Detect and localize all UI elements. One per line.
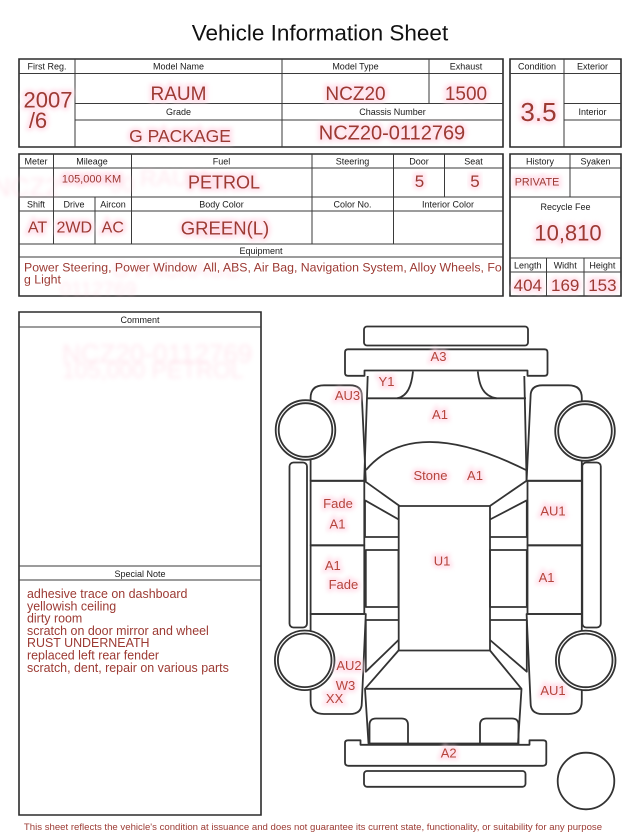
svg-text:10,810: 10,810 xyxy=(534,221,601,246)
svg-text:Vehicle Information Sheet: Vehicle Information Sheet xyxy=(192,20,449,45)
svg-text:Height: Height xyxy=(589,261,616,271)
svg-text:Special Note: Special Note xyxy=(114,569,165,579)
svg-text:Chassis Number: Chassis Number xyxy=(359,107,426,117)
svg-text:History: History xyxy=(526,157,555,167)
svg-text:Drive: Drive xyxy=(63,200,84,210)
svg-text:AU3: AU3 xyxy=(335,388,360,403)
svg-text:Y1: Y1 xyxy=(379,374,395,389)
svg-text:404: 404 xyxy=(514,276,542,295)
svg-text:Steering: Steering xyxy=(336,157,370,167)
svg-text:A3: A3 xyxy=(431,349,447,364)
svg-text:Comment: Comment xyxy=(120,315,160,325)
svg-text:A2: A2 xyxy=(441,746,457,761)
svg-text:PETROL: PETROL xyxy=(188,173,260,193)
svg-text:GREEN(L): GREEN(L) xyxy=(181,218,269,239)
svg-text:105,000 KM: 105,000 KM xyxy=(62,174,121,186)
svg-text:AU1: AU1 xyxy=(540,504,565,519)
svg-text:Condition: Condition xyxy=(518,62,556,72)
svg-text:Equipment: Equipment xyxy=(239,246,283,256)
svg-text:Fade: Fade xyxy=(323,496,353,511)
svg-text:Interior Color: Interior Color xyxy=(422,200,474,210)
svg-text:This sheet reflects the vehicl: This sheet reflects the vehicle's condit… xyxy=(24,822,602,833)
svg-text:Fade: Fade xyxy=(329,577,359,592)
svg-text:169: 169 xyxy=(551,276,579,295)
svg-text:A1: A1 xyxy=(330,517,346,532)
svg-text:g Light: g Light xyxy=(24,272,62,286)
svg-text:NCZ20: NCZ20 xyxy=(325,84,385,105)
svg-text:5: 5 xyxy=(415,172,424,191)
svg-text:Door: Door xyxy=(409,157,429,167)
svg-text:Syaken: Syaken xyxy=(580,157,610,167)
svg-text:0112769: 0112769 xyxy=(60,279,136,301)
svg-text:Recycle Fee: Recycle Fee xyxy=(540,202,590,212)
svg-text:5: 5 xyxy=(470,172,479,191)
svg-text:Exhaust: Exhaust xyxy=(450,62,483,72)
svg-text:U1: U1 xyxy=(434,554,451,569)
svg-text:1500: 1500 xyxy=(445,84,487,105)
svg-text:Model Type: Model Type xyxy=(332,62,378,72)
svg-text:PRIVATE: PRIVATE xyxy=(515,177,560,189)
svg-text:/6: /6 xyxy=(29,108,47,133)
svg-text:First Reg.: First Reg. xyxy=(27,62,66,72)
svg-text:Stone: Stone xyxy=(414,468,448,483)
svg-text:AT: AT xyxy=(28,220,47,237)
svg-text:scratch, dent, repair on vario: scratch, dent, repair on various parts xyxy=(27,661,229,675)
svg-text:AU2: AU2 xyxy=(336,658,361,673)
svg-text:NCZ2: NCZ2 xyxy=(0,172,60,202)
svg-text:A1: A1 xyxy=(539,570,555,585)
svg-text:Widht: Widht xyxy=(554,261,578,271)
svg-text:A1: A1 xyxy=(432,407,448,422)
svg-text:Exterior: Exterior xyxy=(577,62,608,72)
svg-text:Length: Length xyxy=(514,261,542,271)
svg-text:XX: XX xyxy=(326,691,344,706)
svg-text:Fuel: Fuel xyxy=(213,157,231,167)
svg-text:Seat: Seat xyxy=(464,157,483,167)
svg-text:105,000 PETROL: 105,000 PETROL xyxy=(62,357,244,383)
svg-text:Mileage: Mileage xyxy=(76,157,108,167)
svg-text:NCZ20-0112769: NCZ20-0112769 xyxy=(319,123,465,145)
svg-text:Power Steering, Power Window: Power Steering, Power Window All, ABS, A… xyxy=(24,260,502,274)
svg-text:AC: AC xyxy=(102,220,124,237)
svg-text:Body Color: Body Color xyxy=(199,200,244,210)
svg-text:AU1: AU1 xyxy=(540,683,565,698)
svg-text:Shift: Shift xyxy=(27,200,46,210)
svg-text:G PACKAGE: G PACKAGE xyxy=(129,126,231,146)
svg-text:A1: A1 xyxy=(467,468,483,483)
svg-text:Model Name: Model Name xyxy=(153,62,204,72)
svg-text:A1: A1 xyxy=(325,558,341,573)
svg-text:2WD: 2WD xyxy=(57,220,93,237)
svg-text:3.5: 3.5 xyxy=(520,97,556,127)
svg-text:Color No.: Color No. xyxy=(333,200,371,210)
svg-text:Interior: Interior xyxy=(578,107,606,117)
svg-text:Meter: Meter xyxy=(24,157,47,167)
svg-text:RAUM: RAUM xyxy=(151,84,207,105)
svg-text:153: 153 xyxy=(588,276,616,295)
svg-text:Grade: Grade xyxy=(166,107,191,117)
svg-text:Aircon: Aircon xyxy=(100,200,126,210)
